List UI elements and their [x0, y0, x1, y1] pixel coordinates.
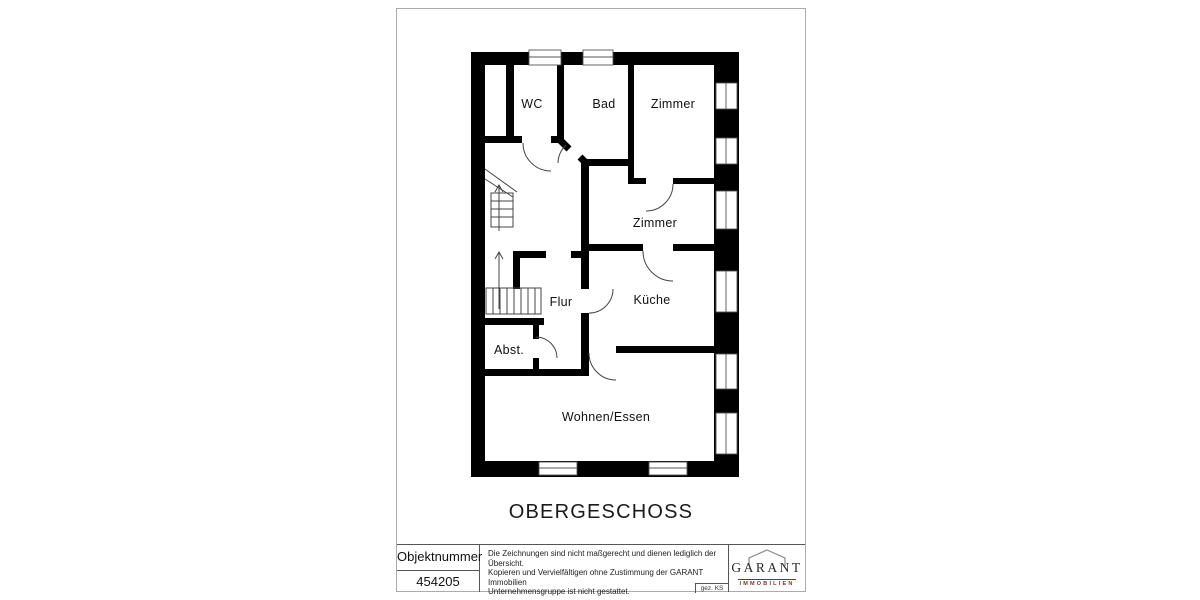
disclaimer-line-1: Die Zeichnungen sind nicht maßgerecht un… — [488, 549, 720, 568]
disclaimer-line-3: Unternehmensgruppe ist nicht gestattet. — [488, 587, 720, 597]
stair-up-arrow-icon — [495, 252, 503, 309]
door-arcs — [523, 143, 673, 380]
page: WC Bad Zimmer Zimmer Flur Küche Abst. Wo… — [0, 0, 1200, 600]
disclaimer-text: Die Zeichnungen sind nicht maßgerecht un… — [488, 549, 720, 597]
stair-up-arrow-icon — [495, 185, 503, 231]
logo-subtitle: IMMOBILIEN — [728, 581, 806, 587]
room-label-wohnen: Wohnen/Essen — [562, 410, 650, 424]
room-label-zimmer1: Zimmer — [651, 97, 695, 111]
logo-name: GARANT — [728, 560, 806, 576]
room-label-zimmer2: Zimmer — [633, 216, 677, 230]
signed-badge: gez. KS — [695, 583, 728, 593]
room-label-kueche: Küche — [634, 293, 671, 307]
staircase — [485, 169, 541, 314]
logo-rule — [738, 579, 796, 581]
room-label-bad: Bad — [592, 97, 615, 111]
drawing-sheet: WC Bad Zimmer Zimmer Flur Küche Abst. Wo… — [396, 8, 806, 592]
object-number-value: 454205 — [397, 570, 479, 593]
disclaimer-line-2: Kopieren und Vervielfältigen ohne Zustim… — [488, 568, 720, 587]
room-label-wc: WC — [521, 97, 542, 111]
interior-walls — [485, 65, 714, 376]
room-label-flur: Flur — [550, 295, 573, 309]
plan-title: OBERGESCHOSS — [397, 501, 805, 524]
object-number-label: Objektnummer — [397, 544, 479, 570]
room-label-abst: Abst. — [494, 343, 524, 357]
garant-logo: GARANT IMMOBILIEN — [728, 544, 806, 593]
